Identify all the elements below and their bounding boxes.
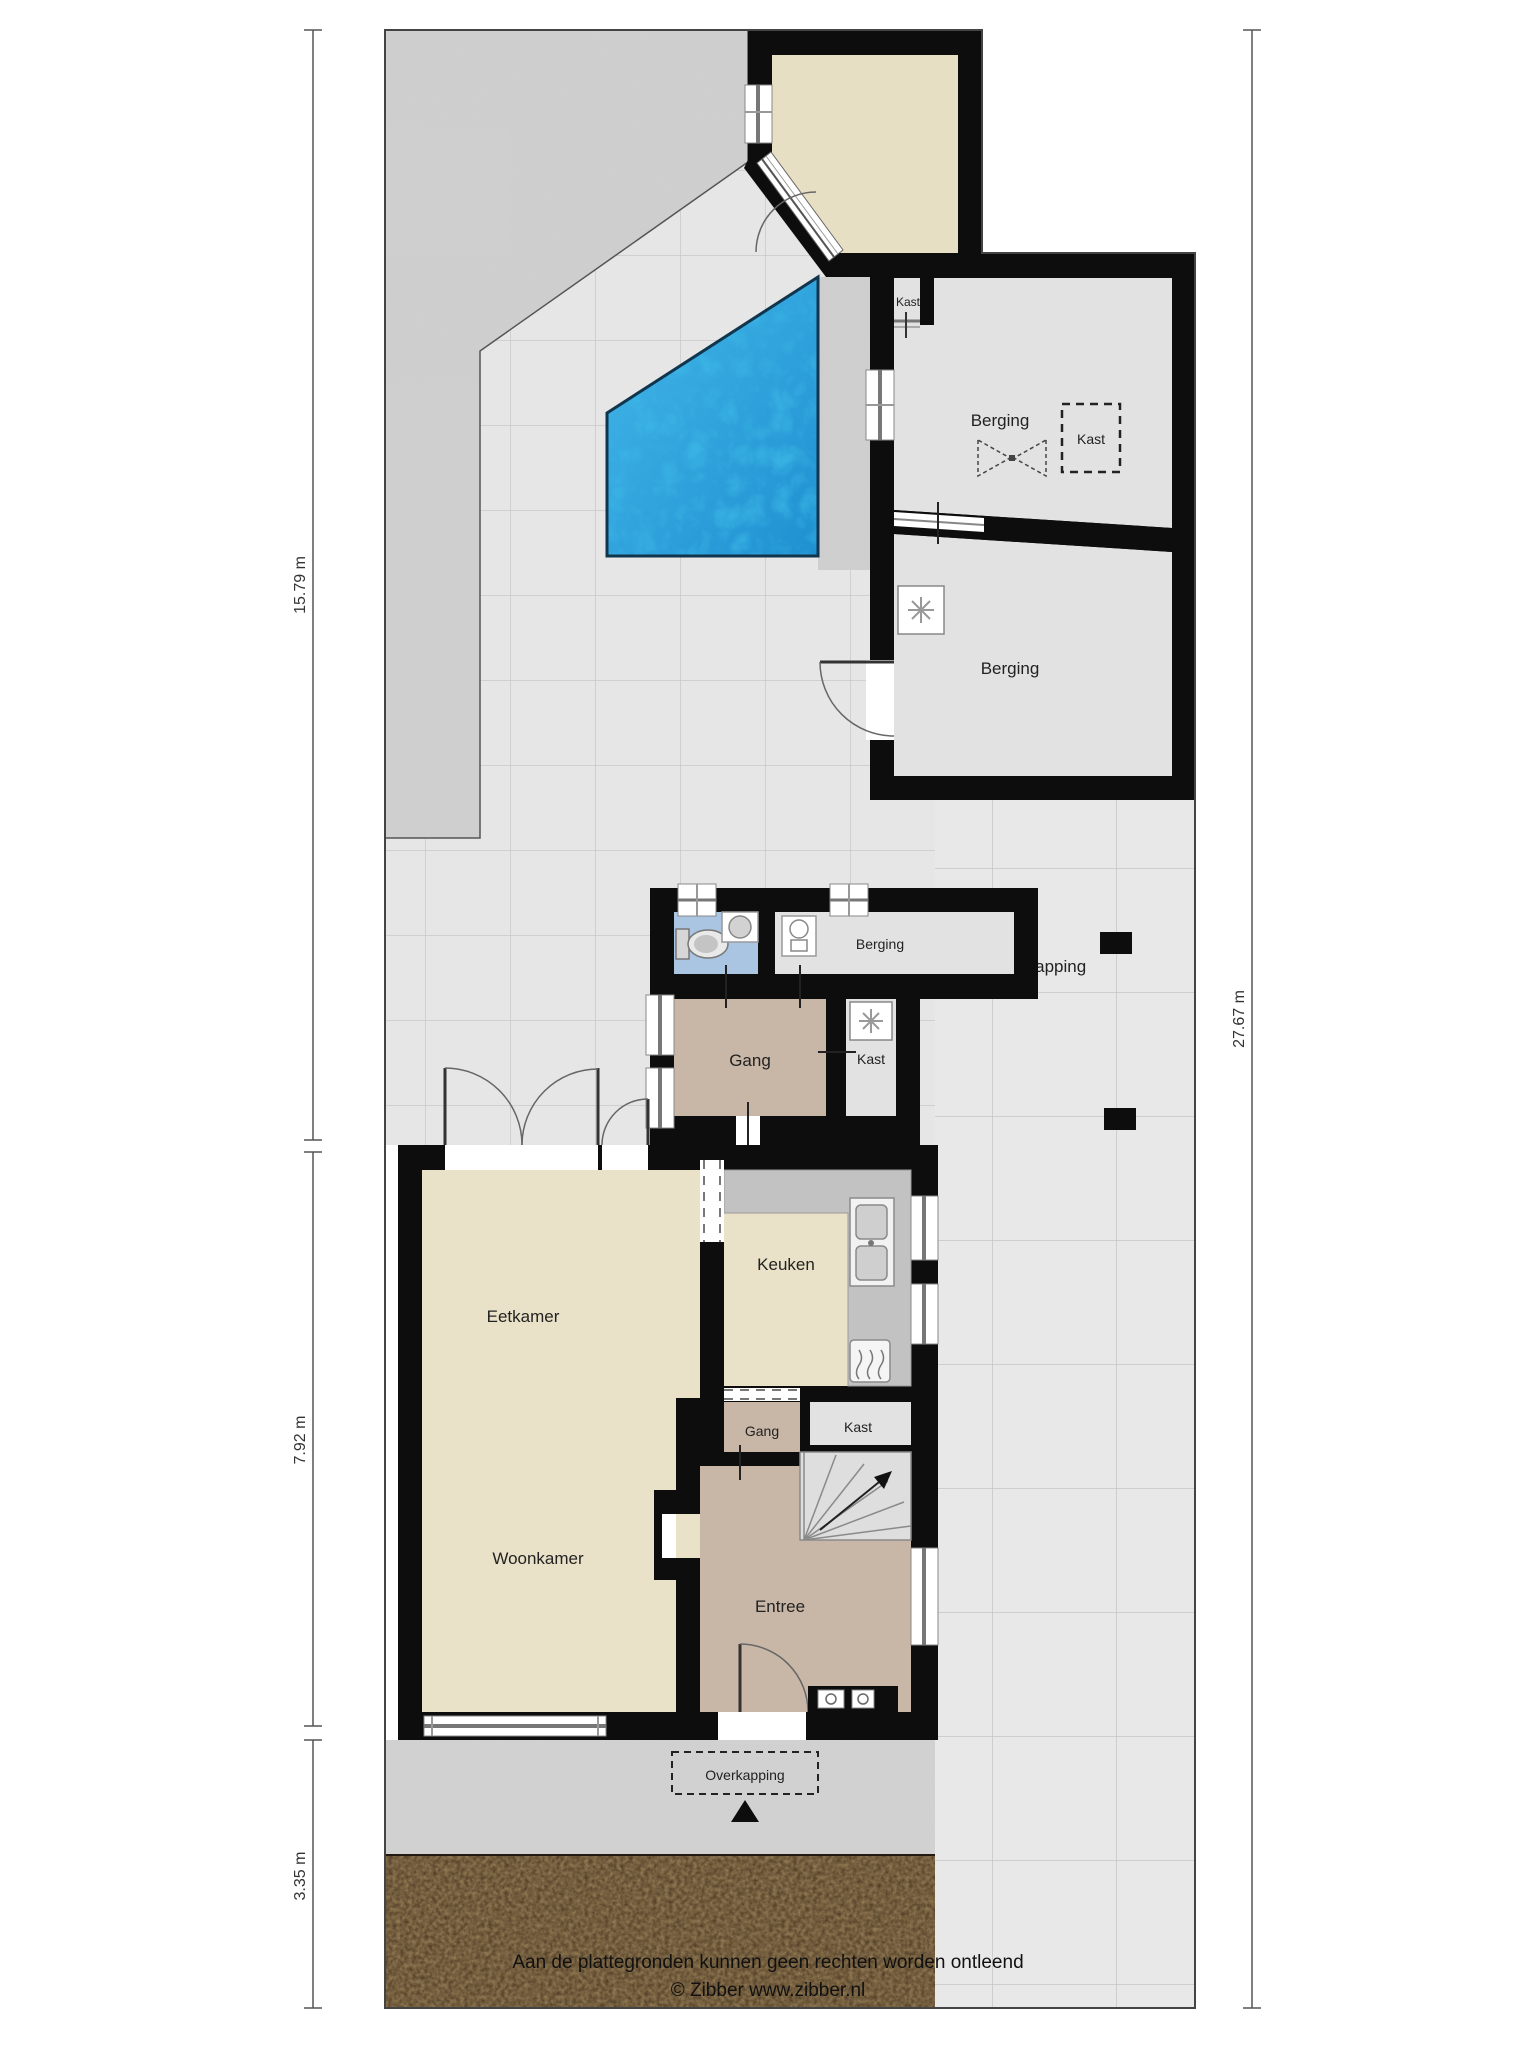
floorplan-svg: Kast Kast Berging Berging <box>0 0 1536 2048</box>
room-label-gang-annex: Gang <box>729 1051 771 1070</box>
room-label-overkapping-front: Overkapping <box>705 1767 784 1783</box>
room-label-woonkamer: Woonkamer <box>492 1549 584 1568</box>
berging-mid-floor <box>894 534 1172 776</box>
toilet-icon <box>676 929 728 959</box>
dimension-label-garden: 15.79 m <box>292 556 309 614</box>
window <box>866 370 894 440</box>
stove-icon <box>850 1340 890 1382</box>
eetkamer-woonkamer-floor <box>422 1170 700 1712</box>
chimney-niche <box>654 1490 700 1580</box>
room-label-berging-mid: Berging <box>981 659 1040 678</box>
window <box>911 1548 938 1645</box>
room-label-eetkamer: Eetkamer <box>487 1307 560 1326</box>
window <box>911 1196 938 1260</box>
berging-top-floor <box>894 278 1172 528</box>
boiler-icon <box>782 916 816 956</box>
window <box>678 884 716 916</box>
room-label-kast-annex: Kast <box>857 1051 885 1067</box>
dimension-label-house: 7.92 m <box>292 1416 309 1465</box>
berging-building: Kast Kast Berging Berging <box>820 253 1195 800</box>
footer-credit: © Zibber www.zibber.nl <box>671 1980 866 2001</box>
footer-disclaimer: Aan de plattegronden kunnen geen rechten… <box>512 1952 1023 1973</box>
floorplan-page: Kast Kast Berging Berging <box>0 0 1536 2048</box>
dimension-label-front: 3.35 m <box>292 1852 309 1901</box>
carport-post <box>1104 1108 1136 1130</box>
double-sink-icon <box>850 1198 894 1286</box>
window <box>745 85 772 143</box>
sink-icon <box>722 912 758 942</box>
front-gravel <box>385 1740 935 1855</box>
house: Eetkamer Keuken Gang Kast Woonkamer Entr… <box>398 1068 938 1740</box>
room-label-berging-top: Berging <box>971 411 1030 430</box>
window <box>830 884 868 916</box>
meter-cupboard <box>808 1686 898 1712</box>
window <box>646 1068 674 1128</box>
stairs <box>800 1452 911 1540</box>
room-label-kast-dashed: Kast <box>1077 431 1105 447</box>
carport-post <box>1100 932 1132 954</box>
window <box>911 1284 938 1344</box>
room-label-gang-house: Gang <box>745 1423 779 1439</box>
dimension-label-total: 27.67 m <box>1231 990 1248 1048</box>
room-label-keuken: Keuken <box>757 1255 815 1274</box>
room-label-kast-house: Kast <box>844 1419 872 1435</box>
room-label-berging-annex: Berging <box>856 936 904 952</box>
fan-unit <box>898 586 944 634</box>
gravel-strip-pool-side <box>818 277 870 570</box>
window <box>424 1716 606 1736</box>
room-label-entree: Entree <box>755 1597 805 1616</box>
room-label-kast-closet: Kast <box>896 295 921 309</box>
fan-unit <box>850 1002 892 1040</box>
window <box>646 995 674 1055</box>
